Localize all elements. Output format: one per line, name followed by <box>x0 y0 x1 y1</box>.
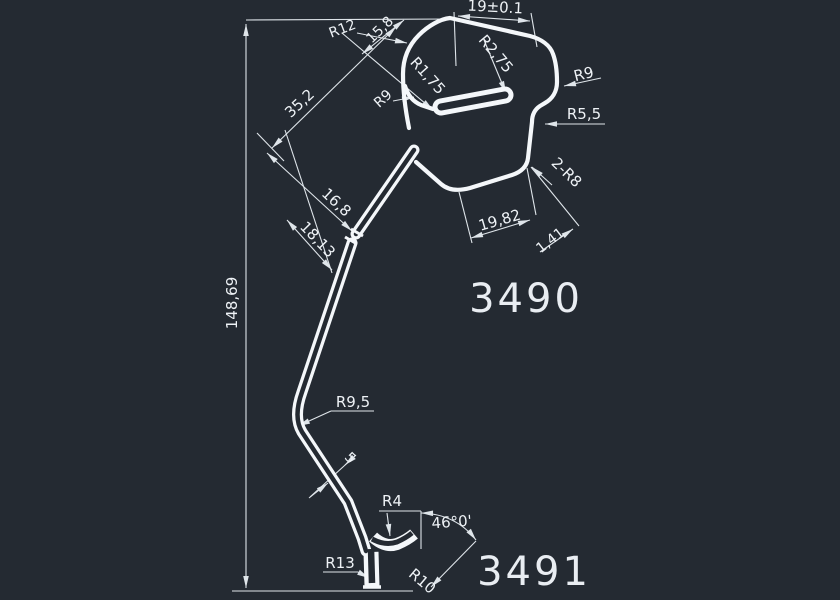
part-number-lower: 3491 <box>477 549 591 595</box>
dim-label-angle: 46°0' <box>431 512 472 533</box>
prong-ext-line <box>431 541 476 587</box>
dim-label-r13: R13 <box>325 554 355 572</box>
dim-label-height: 148,69 <box>223 277 241 330</box>
dim-label-r9-left: R9 <box>371 87 396 111</box>
dim-label-r4: R4 <box>382 492 402 510</box>
dim-label-r9-right: R9 <box>572 63 596 85</box>
dim-label-d1982: 19,82 <box>476 206 522 235</box>
wire-tail-upper-core <box>356 150 414 234</box>
dim-label-d352: 35,2 <box>281 85 318 121</box>
part-number-upper: 3490 <box>469 276 583 322</box>
cad-canvas[interactable]: R12 15,8 19±0.1 R2,75 R1,75 R9 R9 R5,5 2… <box>0 0 840 600</box>
d352-dim-line <box>272 27 396 148</box>
dim-label-r12: R12 <box>327 17 358 42</box>
dim-label-width-tol: 19±0.1 <box>467 0 523 17</box>
dim-label-d168: 16,8 <box>318 184 355 220</box>
dim-label-two-r8: 2-R8 <box>548 154 586 191</box>
dimension-labels: R12 15,8 19±0.1 R2,75 R1,75 R9 R9 R5,5 2… <box>223 0 601 598</box>
dim-label-r95: R9,5 <box>336 393 370 411</box>
dim-label-r175: R1,75 <box>406 53 449 98</box>
dim-label-wire-dia: 5 <box>341 449 359 467</box>
r4-leader <box>387 513 390 536</box>
dim-label-r55: R5,5 <box>567 105 601 123</box>
wire-dia-arrow-b <box>309 483 328 498</box>
d1982-ext-left <box>459 192 472 243</box>
d1982-ext-right <box>527 168 536 215</box>
fork-stem-core <box>371 549 372 583</box>
width-tol-ext-right <box>531 13 537 47</box>
dim-label-r10: R10 <box>405 565 439 598</box>
dim-label-d141: 1,41 <box>533 225 567 257</box>
two-r8-leader <box>532 167 552 185</box>
